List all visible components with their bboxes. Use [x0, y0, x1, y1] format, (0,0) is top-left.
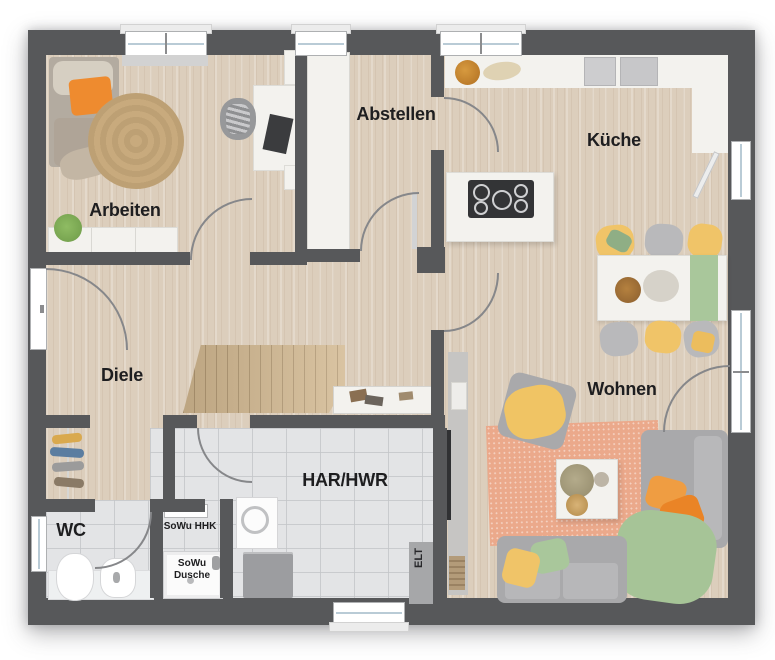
floor-plan: ELT Arbeiten Abstellen Küche Diele Wo [0, 0, 775, 660]
window-outer-sill [329, 622, 409, 632]
utility-unit [243, 552, 293, 598]
wall [433, 428, 447, 598]
elt-panel: ELT [409, 542, 433, 604]
wall [295, 55, 307, 265]
window [440, 31, 522, 56]
wall [431, 330, 444, 428]
wall [431, 150, 444, 273]
washer-door-icon [241, 506, 269, 534]
wall [46, 499, 95, 512]
burner-icon [474, 201, 488, 215]
wall [220, 499, 233, 598]
centerpiece-flowers [643, 270, 679, 302]
door-handle-icon [40, 305, 44, 313]
annotation-sowu-dusche: SoWu Dusche [160, 558, 224, 581]
magazines [451, 382, 467, 410]
toilet [56, 553, 94, 601]
burner-icon [514, 199, 528, 213]
room-label-wohnen: Wohnen [560, 379, 684, 400]
entrance-door-leaf [30, 268, 47, 350]
window [295, 31, 347, 56]
kitchen-sink-left [584, 57, 616, 86]
room-label-diele: Diele [70, 365, 174, 386]
room-label-har-hwr: HAR/HWR [280, 470, 410, 491]
centerpiece-bowl [615, 277, 641, 303]
window [125, 31, 207, 56]
wall [163, 415, 175, 512]
coat-rack-top [46, 415, 90, 428]
kitchen-sink-right [620, 57, 658, 86]
dining-chair-gray [599, 320, 640, 357]
dining-chair-yellow [643, 319, 682, 355]
wall [307, 249, 360, 262]
terrace-door-glazing [731, 310, 751, 433]
table-plant [560, 464, 594, 498]
window [731, 141, 751, 200]
window-inner-sill [122, 55, 208, 66]
book-stack [449, 556, 465, 590]
staircase [183, 345, 345, 413]
room-label-abstellen: Abstellen [330, 104, 462, 125]
elt-label: ELT [413, 548, 425, 568]
decor-bowl [566, 494, 588, 516]
vase [594, 472, 609, 487]
chair-cloth-yellow [690, 330, 716, 354]
table-runner [690, 255, 718, 321]
wall [431, 55, 444, 97]
round-jute-rug [88, 93, 184, 189]
burner-icon [473, 184, 490, 201]
dining-chair-gray [644, 223, 684, 260]
window [333, 602, 405, 624]
fruit-bowl [455, 60, 480, 85]
storage-cabinet [307, 52, 350, 250]
room-label-arbeiten: Arbeiten [60, 200, 190, 221]
sofa-cushion [563, 563, 618, 599]
burner-icon [492, 190, 512, 210]
shelf-item [399, 391, 414, 400]
chair-cushion [226, 104, 250, 134]
room-label-wc: WC [40, 520, 102, 541]
wall [250, 415, 445, 428]
bidet-faucet [113, 572, 120, 583]
room-label-kueche: Küche [560, 130, 668, 151]
annotation-sowu-hhk: SoWu HHK [150, 521, 230, 532]
wall [150, 499, 205, 512]
kitchen-counter-right [692, 55, 728, 153]
burner-icon [514, 184, 528, 198]
wall [46, 252, 190, 265]
